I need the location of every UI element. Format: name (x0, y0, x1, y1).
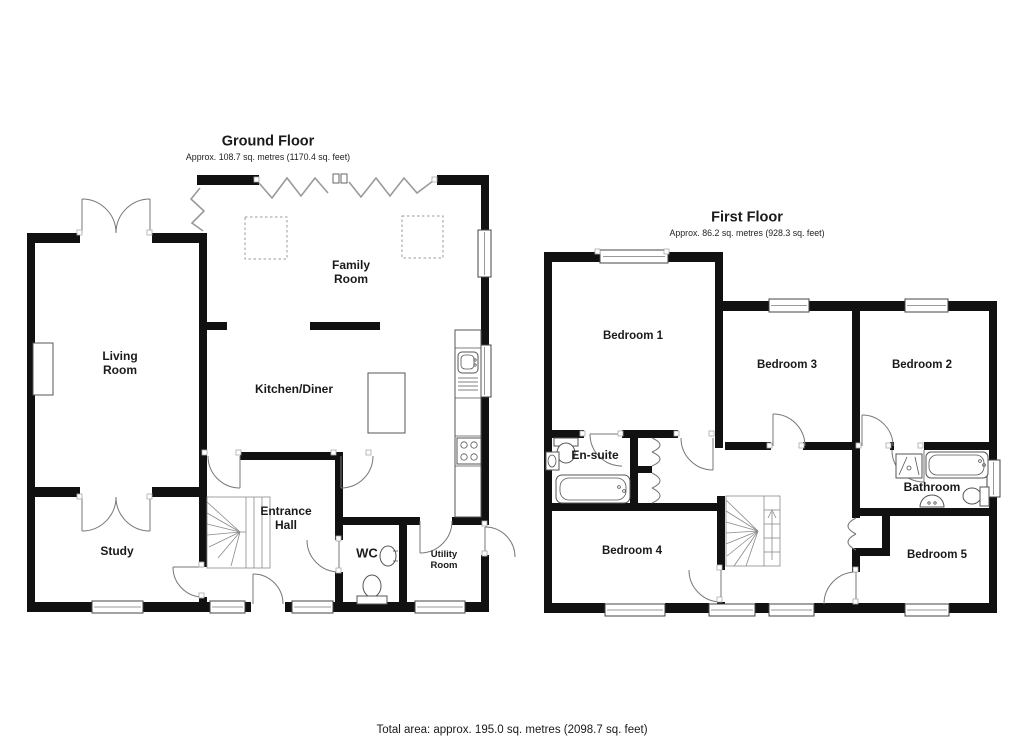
room-label-wc: WC (356, 545, 378, 560)
stair-direction-arrow (768, 510, 776, 560)
bath-icon (926, 452, 988, 478)
toilet-icon (357, 575, 387, 604)
bifold-cupboard-icon (848, 518, 856, 550)
first-floor-area: Approx. 86.2 sq. metres (928.3 sq. feet) (669, 228, 824, 238)
fireplace-icon (33, 343, 53, 395)
bath-icon (556, 475, 630, 503)
rooflight-symbols (245, 216, 443, 259)
ground-floor-area: Approx. 108.7 sq. metres (1170.4 sq. fee… (186, 152, 350, 162)
room-label-bedroom-4: Bedroom 4 (602, 545, 662, 559)
room-label-en-suite: En-suite (571, 448, 618, 462)
room-label-bedroom-5: Bedroom 5 (907, 549, 967, 563)
bifold-closet-icon (652, 473, 660, 503)
room-label-living-room: Living Room (102, 349, 137, 377)
hob-icon (457, 438, 481, 464)
room-label-bedroom-1: Bedroom 1 (603, 330, 663, 344)
kitchen-island (368, 373, 405, 433)
room-label-study: Study (100, 544, 133, 558)
floorplan-drawing (0, 0, 1024, 745)
basin-icon (380, 546, 398, 566)
toilet-icon (963, 487, 989, 506)
first-floor-stairs (726, 496, 780, 566)
first-floor-title: First Floor (711, 209, 783, 226)
room-label-bathroom: Bathroom (904, 480, 961, 494)
basin-icon (920, 495, 944, 507)
room-label-family-room: Family Room (332, 258, 370, 286)
room-label-kitchen-diner: Kitchen/Diner (255, 382, 333, 396)
room-label-bedroom-3: Bedroom 3 (757, 359, 817, 373)
room-label-bedroom-2: Bedroom 2 (892, 359, 952, 373)
room-label-utility-room: Utility Room (431, 549, 458, 571)
room-label-entrance-hall: Entrance Hall (260, 504, 311, 532)
ground-floor-title: Ground Floor (222, 133, 315, 150)
bifold-closet-icon (652, 438, 660, 466)
ground-floor-doors (82, 199, 515, 604)
total-area-text: Total area: approx. 195.0 sq. metres (20… (376, 724, 647, 738)
shower-icon (896, 454, 922, 478)
kitchen-fixtures (368, 330, 481, 517)
basin-icon (546, 452, 559, 470)
floorplan-page: Ground Floor Approx. 108.7 sq. metres (1… (0, 0, 1024, 745)
